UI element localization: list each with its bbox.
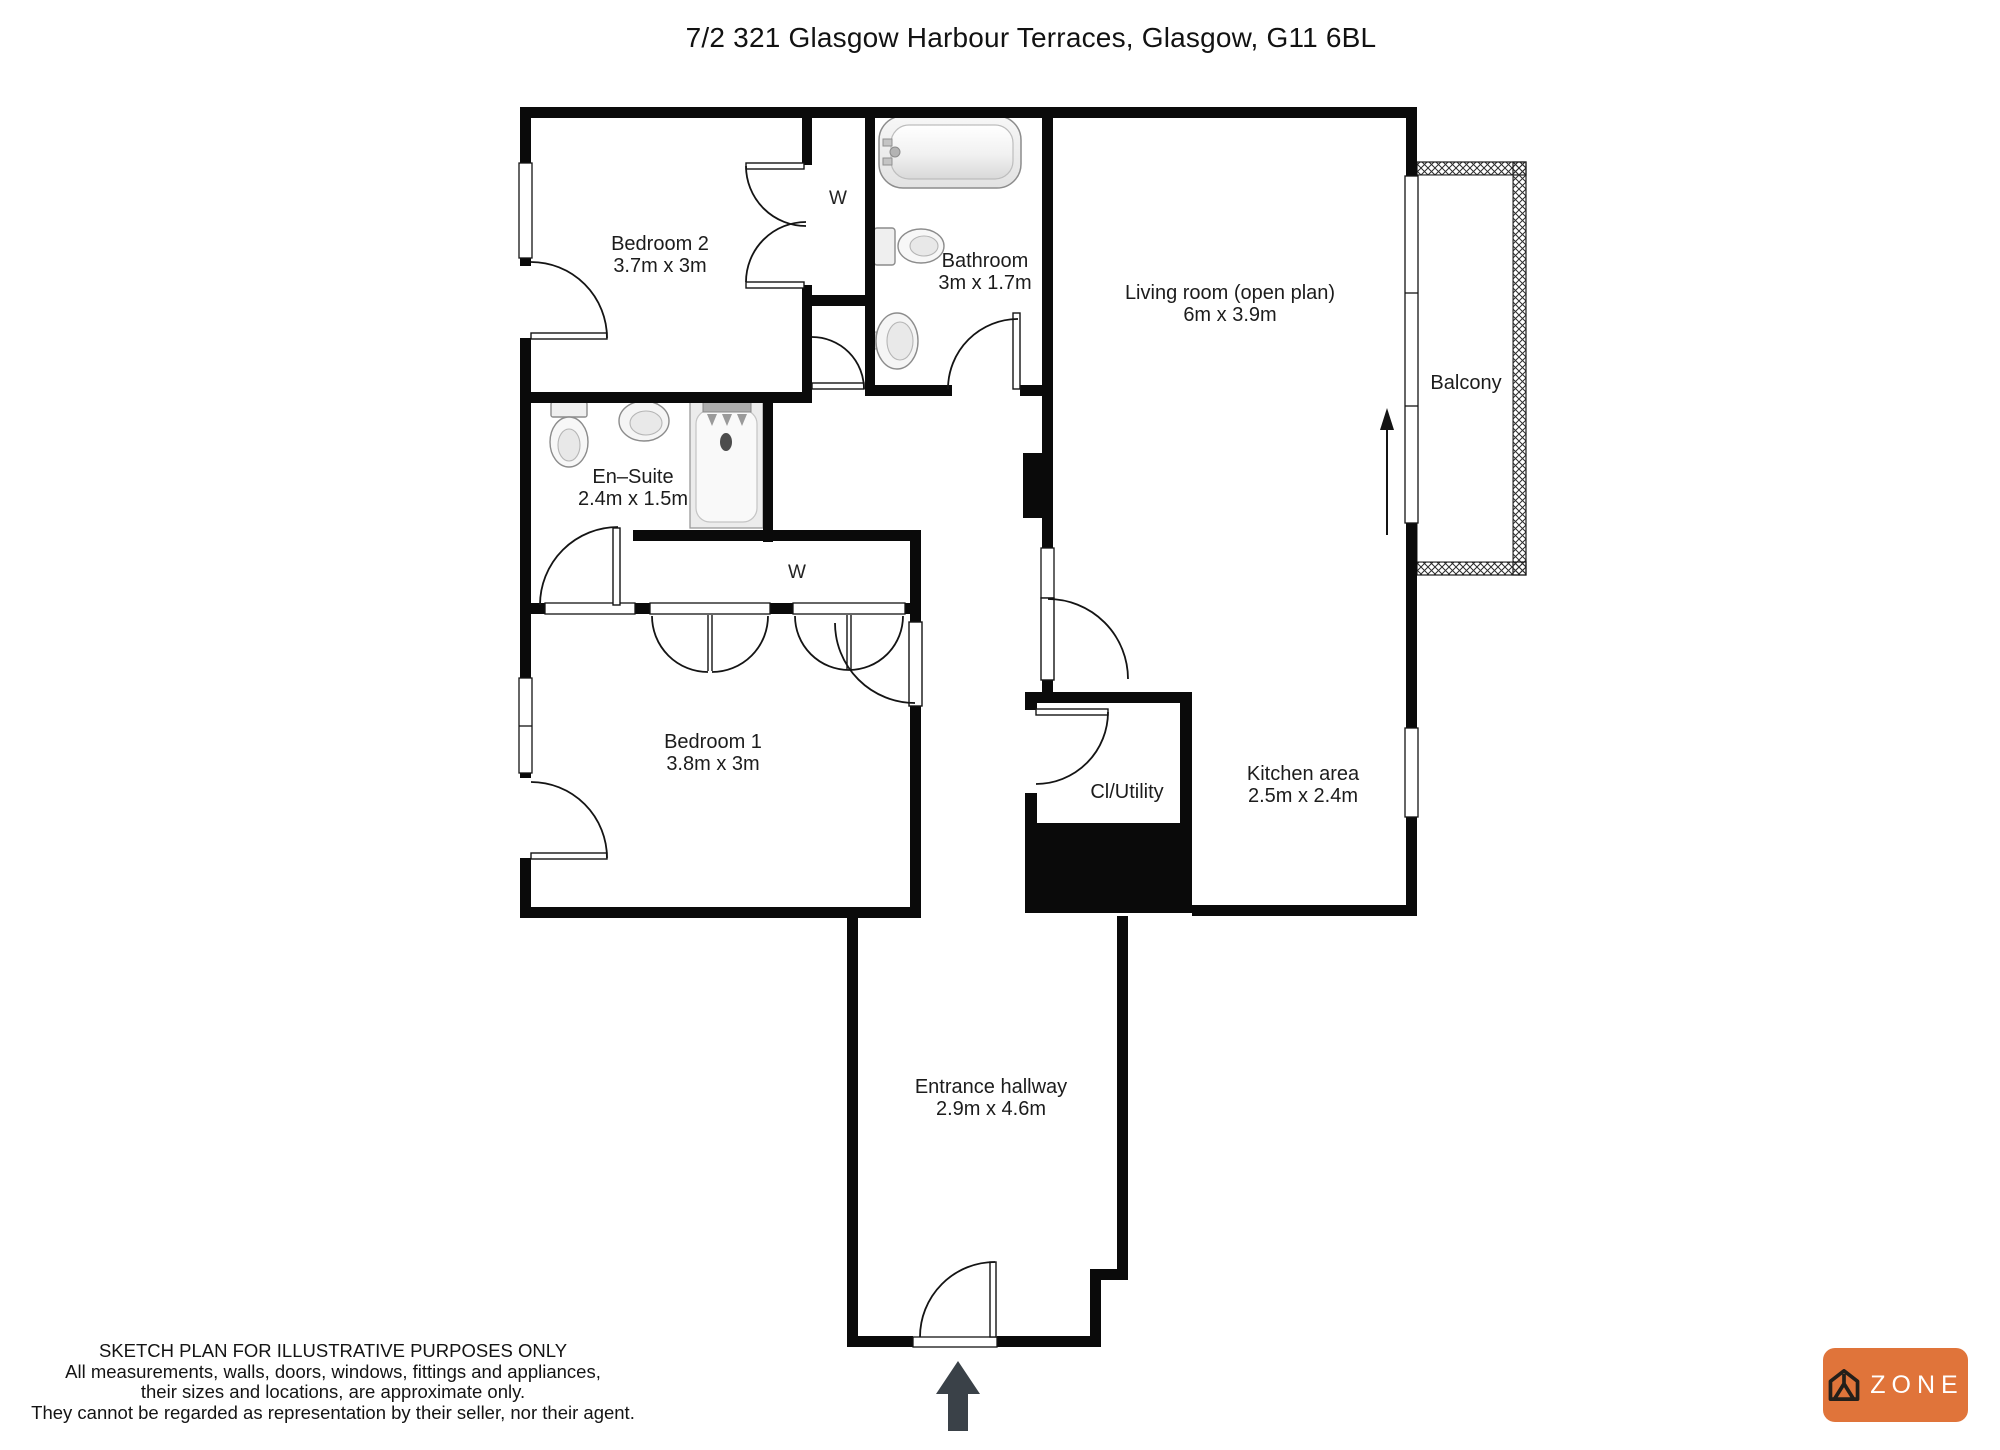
room-name: Bathroom: [942, 250, 1029, 272]
corridor-door-leaf: [812, 383, 864, 389]
wardrobe-label-top: W: [829, 188, 847, 210]
living-room-direction-arrow: [1380, 408, 1394, 535]
bathtub-icon: [879, 116, 1021, 188]
sink-icon: [872, 313, 918, 369]
door-arcs: [531, 166, 1128, 1337]
wardrobe1-right-arc: [712, 616, 768, 672]
bedroom1-door-leaf: [909, 622, 922, 706]
room-dims: 3m x 1.7m: [938, 272, 1031, 294]
wardrobe-opening-2: [793, 603, 905, 614]
room-label-cl-utility: Cl/Utility: [1090, 781, 1163, 803]
wardrobe2-left-arc: [795, 616, 849, 670]
floorplan-page: 7/2 321 Glasgow Harbour Terraces, Glasgo…: [0, 0, 2000, 1450]
kitchen-window: [1405, 728, 1418, 817]
room-dims: 2.9m x 4.6m: [915, 1098, 1067, 1120]
room-label-en-suite: En–Suite 2.4m x 1.5m: [578, 466, 688, 510]
closet-door-arc-top: [746, 166, 806, 226]
disclaimer-line-1: SKETCH PLAN FOR ILLUSTRATIVE PURPOSES ON…: [31, 1341, 635, 1362]
room-name: En–Suite: [592, 466, 673, 488]
room-label-bathroom: Bathroom 3m x 1.7m: [938, 250, 1031, 294]
entrance-threshold: [913, 1337, 997, 1347]
bathroom-door-leaf: [1013, 313, 1020, 389]
room-label-living-room: Living room (open plan) 6m x 3.9m: [1125, 282, 1335, 326]
bedroom1-window-door-leaf: [531, 853, 607, 859]
vestibule-opening: [545, 603, 635, 614]
bedroom2-door-leaf: [531, 333, 607, 339]
room-name: Kitchen area: [1247, 763, 1359, 785]
logo-text: ZONE: [1870, 1371, 1963, 1400]
room-label-bedroom-2: Bedroom 2 3.7m x 3m: [611, 233, 709, 277]
door-leaves: [531, 163, 1108, 1337]
bathroom-fixtures: [872, 116, 1021, 369]
wardrobe-opening-1: [650, 603, 770, 614]
wardrobe2-right-arc: [849, 616, 903, 670]
floor-plan-drawing: [0, 0, 2000, 1450]
bedroom1-window-door-arc: [531, 782, 607, 858]
room-name: Cl/Utility: [1090, 781, 1163, 803]
sink-icon: [619, 398, 669, 441]
room-name: Balcony: [1430, 372, 1501, 394]
disclaimer-line-3: their sizes and locations, are approxima…: [31, 1382, 635, 1403]
room-dims: 2.4m x 1.5m: [578, 488, 688, 510]
disclaimer-text: SKETCH PLAN FOR ILLUSTRATIVE PURPOSES ON…: [31, 1341, 635, 1423]
closet-door-gap: [801, 165, 813, 285]
toilet-icon: [874, 228, 944, 265]
bedroom2-door-arc: [531, 262, 607, 338]
room-label-bedroom-1: Bedroom 1 3.8m x 3m: [664, 731, 762, 775]
ensuite-door-leaf: [613, 528, 620, 605]
room-name: Entrance hallway: [915, 1076, 1067, 1098]
shower-icon: [690, 402, 763, 528]
living-room-door-arc: [1048, 599, 1128, 679]
cl-utility-door-arc: [1036, 712, 1108, 784]
disclaimer-line-2: All measurements, walls, doors, windows,…: [31, 1362, 635, 1383]
zone-logo-badge: ZONE: [1823, 1348, 1968, 1422]
room-name: Bedroom 1: [664, 731, 762, 753]
bathroom-door-arc: [948, 319, 1018, 389]
room-label-entrance-hallway: Entrance hallway 2.9m x 4.6m: [915, 1076, 1067, 1120]
cl-utility-door-leaf: [1036, 709, 1108, 715]
room-dims: 3.7m x 3m: [611, 255, 709, 277]
entrance-north-arrow: [936, 1361, 980, 1431]
closet-door-arc-bottom: [746, 222, 806, 282]
room-dims: 6m x 3.9m: [1125, 304, 1335, 326]
bedroom2-window: [519, 163, 532, 258]
room-name: Living room (open plan): [1125, 282, 1335, 304]
entrance-door-leaf: [990, 1262, 996, 1337]
hallway-internal-window: [1041, 548, 1054, 598]
house-icon: [1827, 1369, 1861, 1401]
entrance-door-arc: [920, 1262, 995, 1337]
room-name: Bedroom 2: [611, 233, 709, 255]
room-dims: 3.8m x 3m: [664, 753, 762, 775]
wardrobe-label-middle: W: [788, 562, 806, 584]
living-room-window: [1405, 176, 1418, 523]
room-label-balcony: Balcony: [1430, 372, 1501, 394]
room-name: W: [829, 188, 847, 209]
wardrobe1-left-arc: [652, 616, 708, 672]
corridor-door-arc: [812, 337, 864, 389]
room-dims: 2.5m x 2.4m: [1247, 785, 1359, 807]
room-name: W: [788, 562, 806, 583]
closet-door-leaf-top: [746, 163, 804, 169]
closet-door-leaf-bottom: [746, 282, 804, 288]
room-label-kitchen: Kitchen area 2.5m x 2.4m: [1247, 763, 1359, 807]
balcony-structure: [1417, 162, 1526, 575]
toilet-icon: [550, 402, 588, 467]
ensuite-door-arc: [540, 527, 618, 605]
disclaimer-line-4: They cannot be regarded as representatio…: [31, 1403, 635, 1424]
living-room-door-leaf: [1041, 598, 1054, 680]
